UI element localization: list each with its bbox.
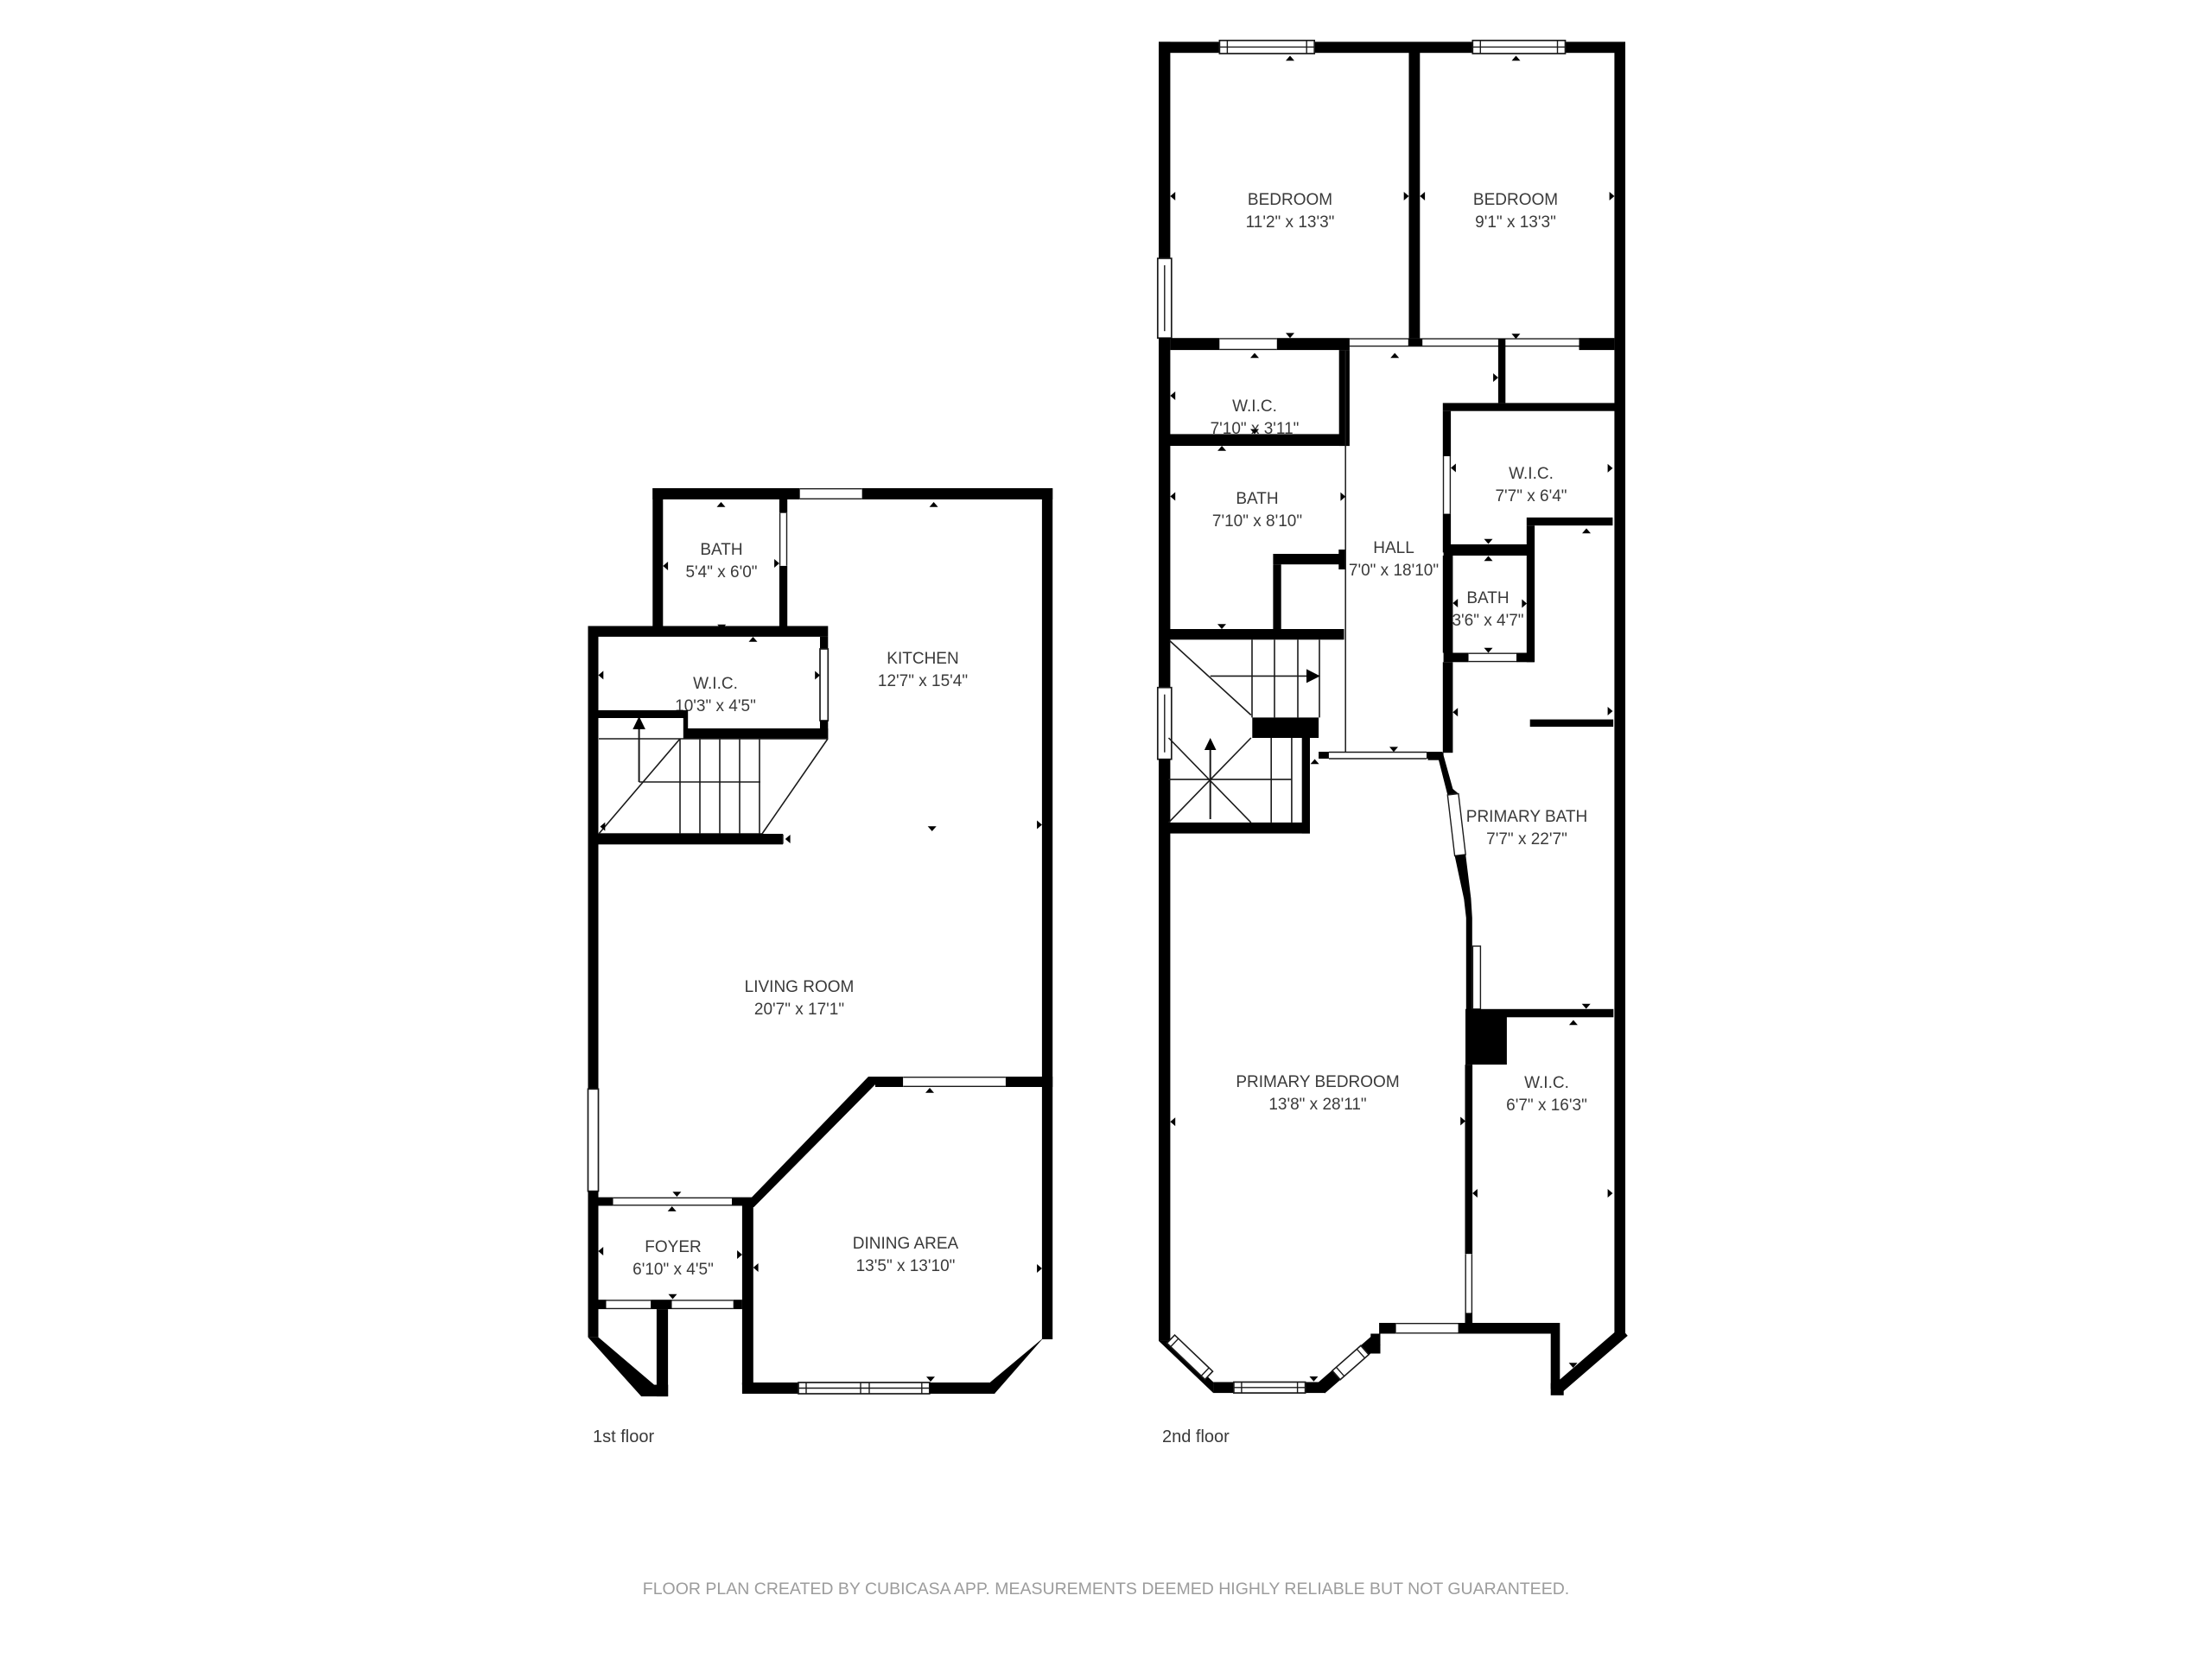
svg-text:20'7" x 17'1": 20'7" x 17'1" [754, 1001, 844, 1019]
svg-text:11'2" x 13'3": 11'2" x 13'3" [1246, 213, 1335, 232]
svg-text:W.I.C.: W.I.C. [1524, 1074, 1569, 1092]
svg-text:3'6" x 4'7": 3'6" x 4'7" [1452, 612, 1523, 630]
svg-text:FOYER: FOYER [645, 1238, 701, 1256]
svg-text:1st floor: 1st floor [593, 1427, 654, 1446]
svg-text:BATH: BATH [700, 541, 742, 559]
svg-text:9'1" x 13'3": 9'1" x 13'3" [1475, 213, 1556, 232]
svg-text:5'4" x 6'0": 5'4" x 6'0" [685, 563, 757, 582]
svg-text:W.I.C.: W.I.C. [1509, 465, 1554, 483]
svg-text:12'7" x 15'4": 12'7" x 15'4" [878, 672, 968, 690]
svg-text:7'7" x 6'4": 7'7" x 6'4" [1495, 487, 1567, 505]
svg-text:LIVING ROOM: LIVING ROOM [745, 978, 855, 996]
svg-text:KITCHEN: KITCHEN [887, 650, 958, 668]
svg-text:6'7" x 16'3": 6'7" x 16'3" [1506, 1096, 1587, 1115]
svg-text:DINING AREA: DINING AREA [853, 1235, 959, 1253]
svg-text:7'10" x 8'10": 7'10" x 8'10" [1212, 512, 1302, 531]
svg-text:HALL: HALL [1373, 539, 1414, 557]
svg-text:13'8" x 28'11": 13'8" x 28'11" [1268, 1096, 1366, 1114]
svg-text:FLOOR PLAN CREATED BY CUBICASA: FLOOR PLAN CREATED BY CUBICASA APP. MEAS… [643, 1580, 1569, 1599]
svg-text:BEDROOM: BEDROOM [1248, 191, 1332, 209]
svg-text:BATH: BATH [1236, 490, 1278, 508]
svg-text:BEDROOM: BEDROOM [1473, 191, 1558, 209]
svg-text:W.I.C.: W.I.C. [1232, 397, 1277, 416]
svg-text:PRIMARY BATH: PRIMARY BATH [1466, 808, 1587, 826]
svg-text:2nd floor: 2nd floor [1162, 1427, 1230, 1446]
svg-text:7'7" x 22'7": 7'7" x 22'7" [1486, 830, 1567, 849]
svg-text:7'0" x 18'10": 7'0" x 18'10" [1349, 562, 1439, 580]
svg-text:PRIMARY BEDROOM: PRIMARY BEDROOM [1236, 1073, 1399, 1091]
svg-text:6'10" x 4'5": 6'10" x 4'5" [632, 1261, 714, 1279]
svg-text:13'5" x 13'10": 13'5" x 13'10" [856, 1257, 956, 1275]
svg-text:W.I.C.: W.I.C. [693, 675, 738, 693]
svg-text:BATH: BATH [1466, 589, 1509, 607]
